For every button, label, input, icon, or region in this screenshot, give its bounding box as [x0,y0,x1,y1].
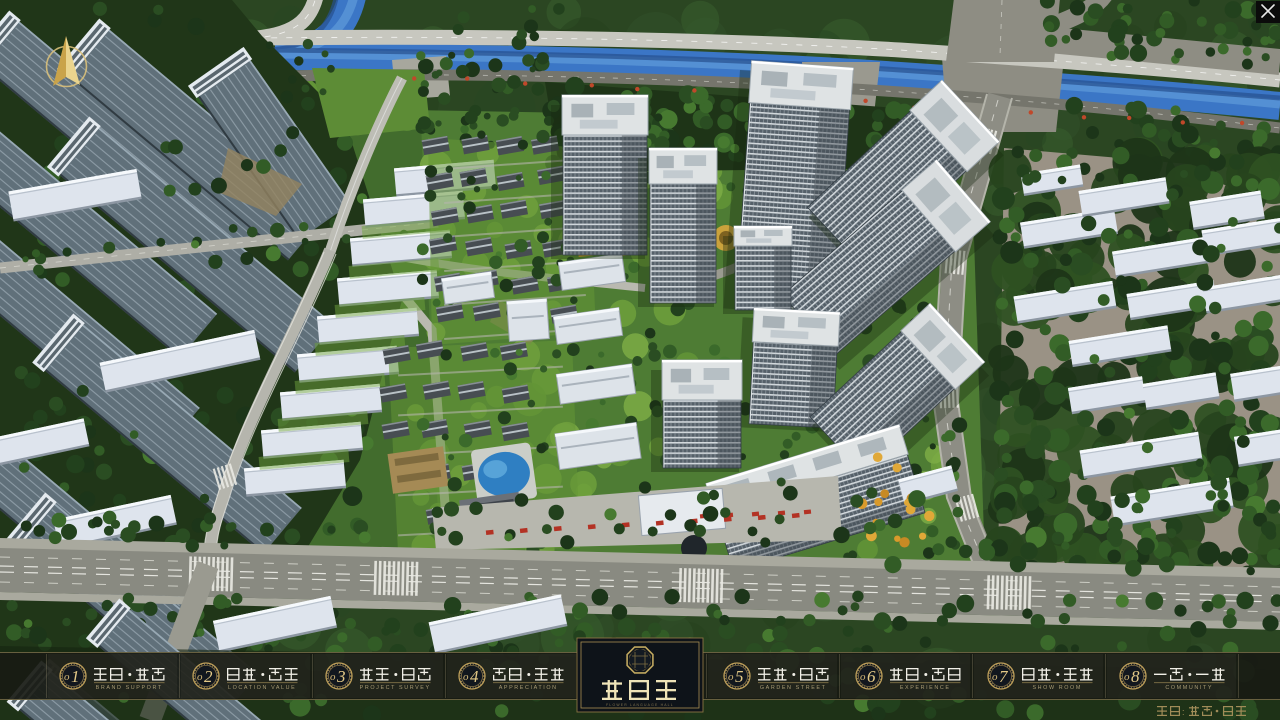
svg-text:FLOWER LANGUAGE HALL: FLOWER LANGUAGE HALL [606,703,674,707]
svg-text:3: 3 [336,667,346,686]
svg-text:BRAND SUPPORT: BRAND SUPPORT [96,685,163,691]
svg-text:8: 8 [1131,667,1140,686]
svg-text:o: o [197,671,203,683]
svg-text:COMMUNITY: COMMUNITY [1165,685,1213,691]
svg-text:EXPERIENCE: EXPERIENCE [900,685,951,691]
svg-text:o: o [64,671,70,683]
svg-text:o: o [992,671,998,683]
svg-text:o: o [1124,671,1130,683]
svg-text:2: 2 [204,667,213,686]
svg-text:o: o [330,671,336,683]
svg-text:5: 5 [735,667,744,686]
svg-text:o: o [860,671,866,683]
svg-text::: : [1182,707,1185,717]
svg-text:6: 6 [867,667,876,686]
svg-text:o: o [463,671,469,683]
svg-text:GARDEN STREET: GARDEN STREET [760,685,827,691]
svg-text:o: o [728,671,734,683]
svg-text:1: 1 [71,667,80,686]
svg-text:LOCATION VALUE: LOCATION VALUE [228,685,296,691]
svg-text:PROJECT SURVEY: PROJECT SURVEY [360,685,431,691]
svg-text:4: 4 [470,667,479,686]
svg-text:SHOW ROOM: SHOW ROOM [1032,685,1081,691]
svg-text:APPRECIATION: APPRECIATION [499,685,558,691]
